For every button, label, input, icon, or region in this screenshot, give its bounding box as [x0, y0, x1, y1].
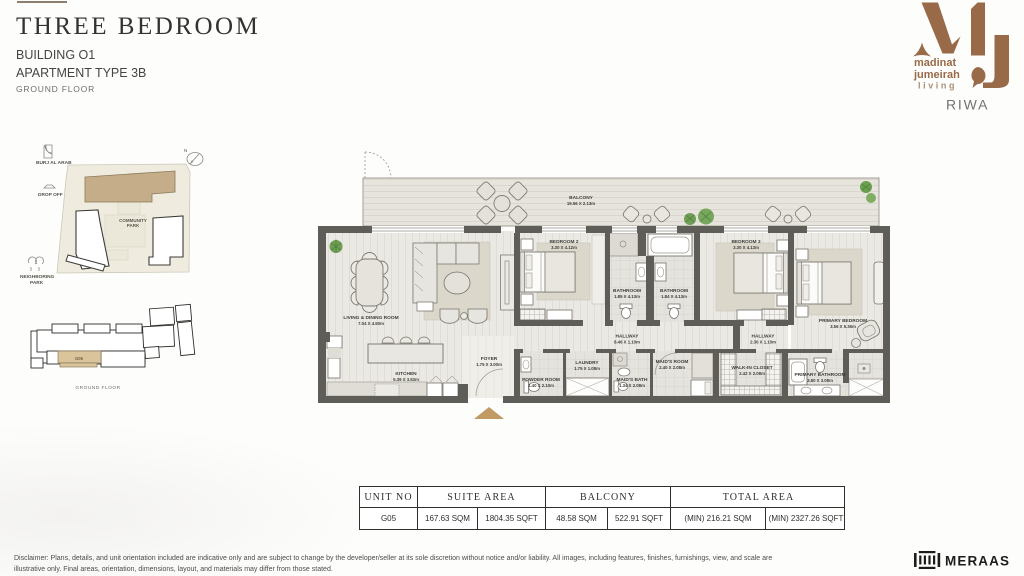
svg-text:3.30 X 4.12m: 3.30 X 4.12m [551, 245, 577, 250]
svg-text:2.30 X 1.10m: 2.30 X 1.10m [750, 340, 776, 345]
svg-text:MERAAS: MERAAS [945, 554, 1010, 569]
svg-text:1.84 X 4.13m: 1.84 X 4.13m [661, 294, 687, 299]
svg-text:7.04 X 4.50m: 7.04 X 4.50m [358, 321, 384, 326]
svg-text:3.56 X 5.36m: 3.56 X 5.36m [830, 324, 856, 329]
svg-text:1.40 X 2.10m: 1.40 X 2.10m [528, 383, 554, 388]
svg-text:3.80 X 3.08m: 3.80 X 3.08m [807, 378, 833, 383]
svg-text:1.34 X 2.08m: 1.34 X 2.08m [619, 383, 645, 388]
svg-text:19.56 X 2.13m: 19.56 X 2.13m [567, 201, 595, 206]
svg-text:3.30 X 4.13m: 3.30 X 4.13m [733, 245, 759, 250]
svg-text:2.42 X 2.08m: 2.42 X 2.08m [739, 371, 765, 376]
svg-text:1.75 X 1.08m: 1.75 X 1.08m [574, 366, 600, 371]
svg-text:8.46 X 1.10m: 8.46 X 1.10m [614, 340, 640, 345]
svg-text:1.85 X 4.13m: 1.85 X 4.13m [614, 294, 640, 299]
svg-text:1.75 X 3.00m: 1.75 X 3.00m [476, 362, 502, 367]
svg-text:2.40 X 2.08m: 2.40 X 2.08m [659, 365, 685, 370]
svg-text:5.39 X 3.53m: 5.39 X 3.53m [393, 377, 419, 382]
